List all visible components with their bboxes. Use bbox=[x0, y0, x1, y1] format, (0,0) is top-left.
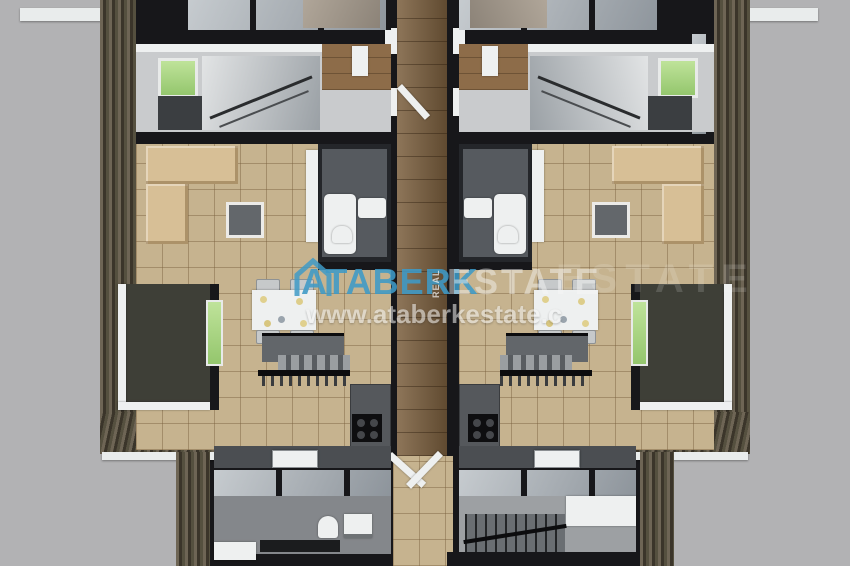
inner-stair-treads-left bbox=[278, 355, 350, 371]
balcony-door-right bbox=[631, 300, 648, 366]
balcony-rail-right bbox=[724, 284, 732, 410]
bath-sink-right bbox=[464, 198, 492, 218]
bath-sink-left bbox=[358, 198, 386, 218]
sofa-left-top bbox=[146, 146, 238, 184]
dining-table-left bbox=[252, 290, 316, 330]
table-plates bbox=[260, 296, 267, 303]
stove-left bbox=[352, 414, 382, 442]
balcony-door-left bbox=[206, 300, 223, 366]
stair-railing-right bbox=[537, 76, 640, 120]
sofa-right-side bbox=[662, 184, 704, 244]
exterior-wall-bottom-left bbox=[176, 452, 210, 566]
inner-stair-balusters-right bbox=[500, 376, 588, 386]
green-skylight-left bbox=[158, 58, 198, 98]
balcony-rail-left bbox=[118, 284, 126, 410]
sofa-right-top bbox=[612, 146, 704, 184]
hall-cabinet-left bbox=[158, 96, 202, 130]
table-plates bbox=[542, 296, 549, 303]
toilet-lower-left bbox=[318, 516, 338, 538]
exterior-wall-bottom-right bbox=[640, 452, 674, 566]
hall-cabinet-right bbox=[648, 96, 692, 130]
staircase-lower-rail-right bbox=[463, 524, 566, 544]
bench-lower-left bbox=[260, 540, 340, 552]
stove-right bbox=[468, 414, 498, 442]
toilet-right bbox=[498, 226, 518, 243]
kitchen-sink-right bbox=[534, 450, 580, 468]
bathroom-wall-right bbox=[459, 262, 532, 270]
staircase-upper-left bbox=[202, 56, 320, 130]
hall-door-right bbox=[482, 46, 498, 76]
floor-plan-render: ATABERK REAL ESTATE ESTATE www.ataberkes… bbox=[0, 0, 850, 566]
window-band-bottom-right bbox=[459, 470, 636, 496]
window-band-bottom-left bbox=[214, 470, 391, 496]
bathroom-door-right bbox=[532, 150, 544, 242]
stove-burners bbox=[473, 419, 481, 427]
stairwell-landing-right bbox=[566, 496, 636, 526]
stove-burners bbox=[357, 419, 365, 427]
toilet-left bbox=[332, 226, 352, 243]
sideboard-lower-left bbox=[214, 542, 256, 560]
top-room-pane-right bbox=[470, 0, 547, 28]
central-corridor bbox=[397, 0, 447, 456]
coffee-table-left bbox=[226, 202, 264, 238]
stairwell-wall-bottom-right bbox=[447, 552, 636, 566]
green-skylight-right bbox=[658, 58, 698, 98]
bathtub-right bbox=[494, 194, 526, 254]
stair-railing-left bbox=[209, 76, 312, 120]
top-room-pane-left bbox=[303, 0, 380, 28]
inner-stair-balusters-left bbox=[262, 376, 350, 386]
balcony-rail-left-bottom bbox=[118, 402, 210, 410]
inner-stair-treads-right bbox=[500, 355, 572, 371]
bathtub-left bbox=[324, 194, 356, 254]
balcony-right bbox=[640, 284, 732, 410]
staircase-upper-right bbox=[530, 56, 648, 130]
bathroom-wall-left bbox=[318, 262, 391, 270]
hall-door-left bbox=[352, 46, 368, 76]
sofa-left-side bbox=[146, 184, 188, 244]
bathroom-door-left bbox=[306, 150, 318, 242]
coffee-table-right bbox=[592, 202, 630, 238]
balcony-left bbox=[118, 284, 210, 410]
balcony-rail-right-bottom bbox=[640, 402, 732, 410]
dining-table-right bbox=[534, 290, 598, 330]
kitchen-sink-left bbox=[272, 450, 318, 468]
vanity-mirror-left bbox=[344, 514, 372, 538]
